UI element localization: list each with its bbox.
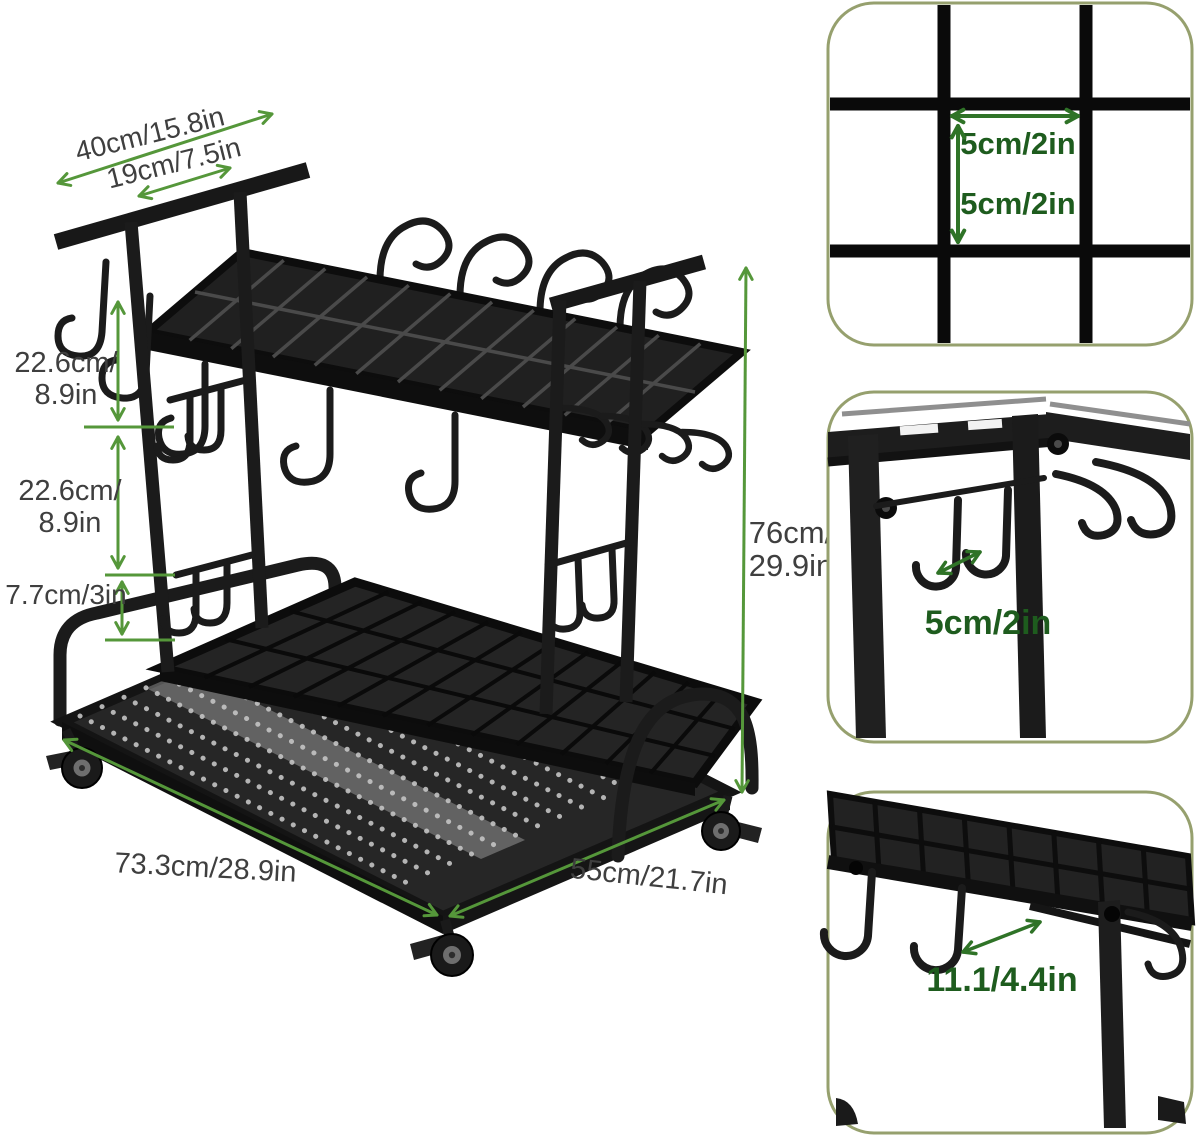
dim-label-length: 73.3cm/28.9in <box>114 847 298 888</box>
detail-panel-grid-spacing: 5cm/2in 5cm/2in <box>828 3 1192 345</box>
panel1-dim-horizontal: 5cm/2in <box>960 126 1075 161</box>
panel2-dim-hook-spacing: 5cm/2in <box>925 604 1052 642</box>
dim-label-upper-height-2: 8.9in <box>35 379 98 411</box>
dim-label-upper-height-1: 22.6cm/ <box>14 347 118 379</box>
detail-panel-hook-length: 11.1/4.4in <box>824 792 1192 1133</box>
diagram-svg: 40cm/15.8in 19cm/7.5in 22.6cm/ 8.9in 22.… <box>0 0 1200 1139</box>
dim-label-total-height-2: 29.9in <box>749 548 833 583</box>
dim-label-base-height: 7.7cm/3in <box>5 579 126 610</box>
dim-label-depth: 55cm/21.7in <box>569 853 729 901</box>
panel1-dim-vertical: 5cm/2in <box>960 186 1075 221</box>
dim-label-mid-height-2: 8.9in <box>39 507 102 539</box>
product-dimension-diagram: 40cm/15.8in 19cm/7.5in 22.6cm/ 8.9in 22.… <box>0 0 1200 1139</box>
dim-label-mid-height-1: 22.6cm/ <box>18 475 122 507</box>
detail-panel-hook-spacing: 5cm/2in <box>828 392 1192 742</box>
right-crossbar-hooks <box>548 542 630 629</box>
dim-label-total-height-1: 76cm/ <box>749 515 834 550</box>
panel3-dim-hook-length: 11.1/4.4in <box>926 961 1077 999</box>
